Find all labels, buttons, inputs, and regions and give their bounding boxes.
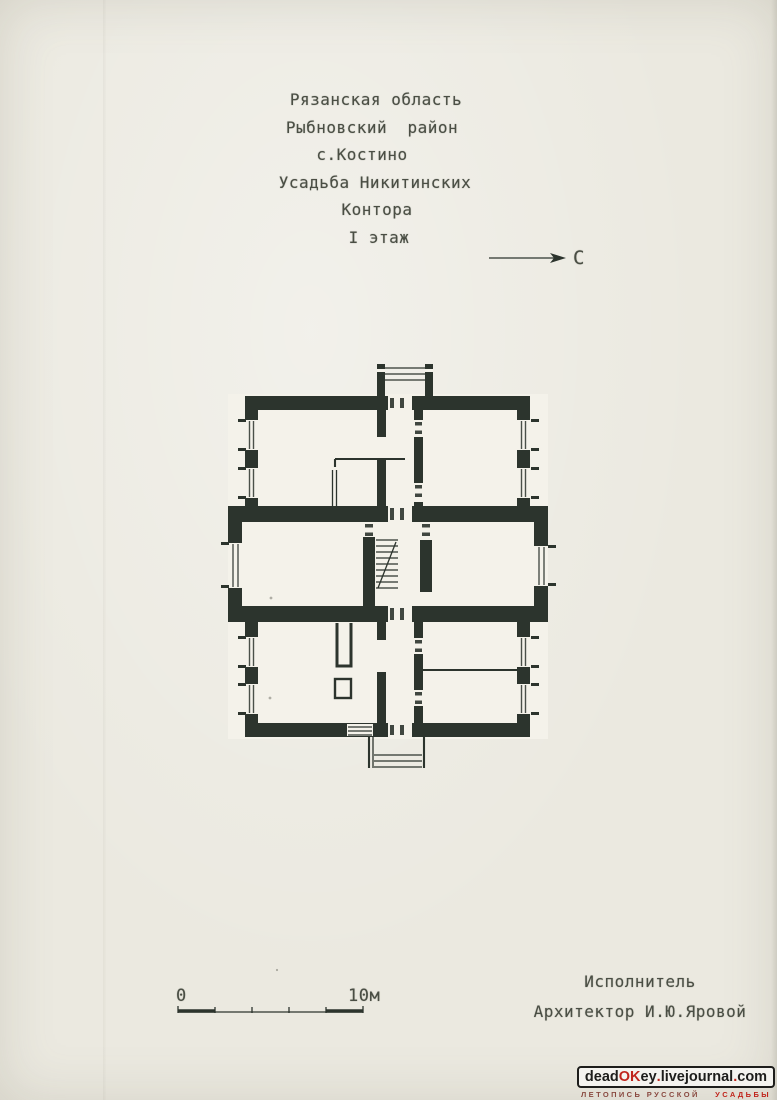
watermark-subtitle: ЛЕТОПИСЬ РУССКОЙ УСАДЬБЫ <box>577 1090 775 1099</box>
watermark-segment: dead <box>585 1070 619 1085</box>
credits-role: Исполнитель <box>529 972 751 991</box>
top-porch <box>377 364 433 397</box>
watermark-segment: livejournal <box>661 1070 734 1085</box>
watermark-segment: ey <box>641 1070 657 1085</box>
watermark-subtitle-left: ЛЕТОПИСЬ РУССКОЙ <box>581 1090 700 1099</box>
north-arrow-icon <box>489 253 566 263</box>
scale-bar <box>178 1006 363 1013</box>
watermark: deadOKey.livejournal.com ЛЕТОПИСЬ РУССКО… <box>577 1066 775 1099</box>
watermark-segment: OK <box>619 1070 641 1085</box>
floor-plan <box>221 364 556 971</box>
watermark-subtitle-right: УСАДЬБЫ <box>715 1090 771 1099</box>
watermark-segment: com <box>737 1070 767 1085</box>
floor-plan-drawing <box>0 0 777 1100</box>
side-steps <box>347 724 373 736</box>
bottom-porch <box>369 737 424 768</box>
watermark-text: deadOKey.livejournal.com <box>577 1066 775 1088</box>
north-label: С <box>573 247 585 269</box>
credits-block: Исполнитель Архитектор И.Ю.Яровой <box>529 972 751 1021</box>
scanned-floor-plan-page: Рязанская область Рыбновский район с.Кос… <box>0 0 777 1100</box>
credits-name: Архитектор И.Ю.Яровой <box>529 1002 751 1021</box>
scale-zero-label: 0 <box>176 986 187 1006</box>
scale-max-label: 10м <box>348 986 380 1006</box>
